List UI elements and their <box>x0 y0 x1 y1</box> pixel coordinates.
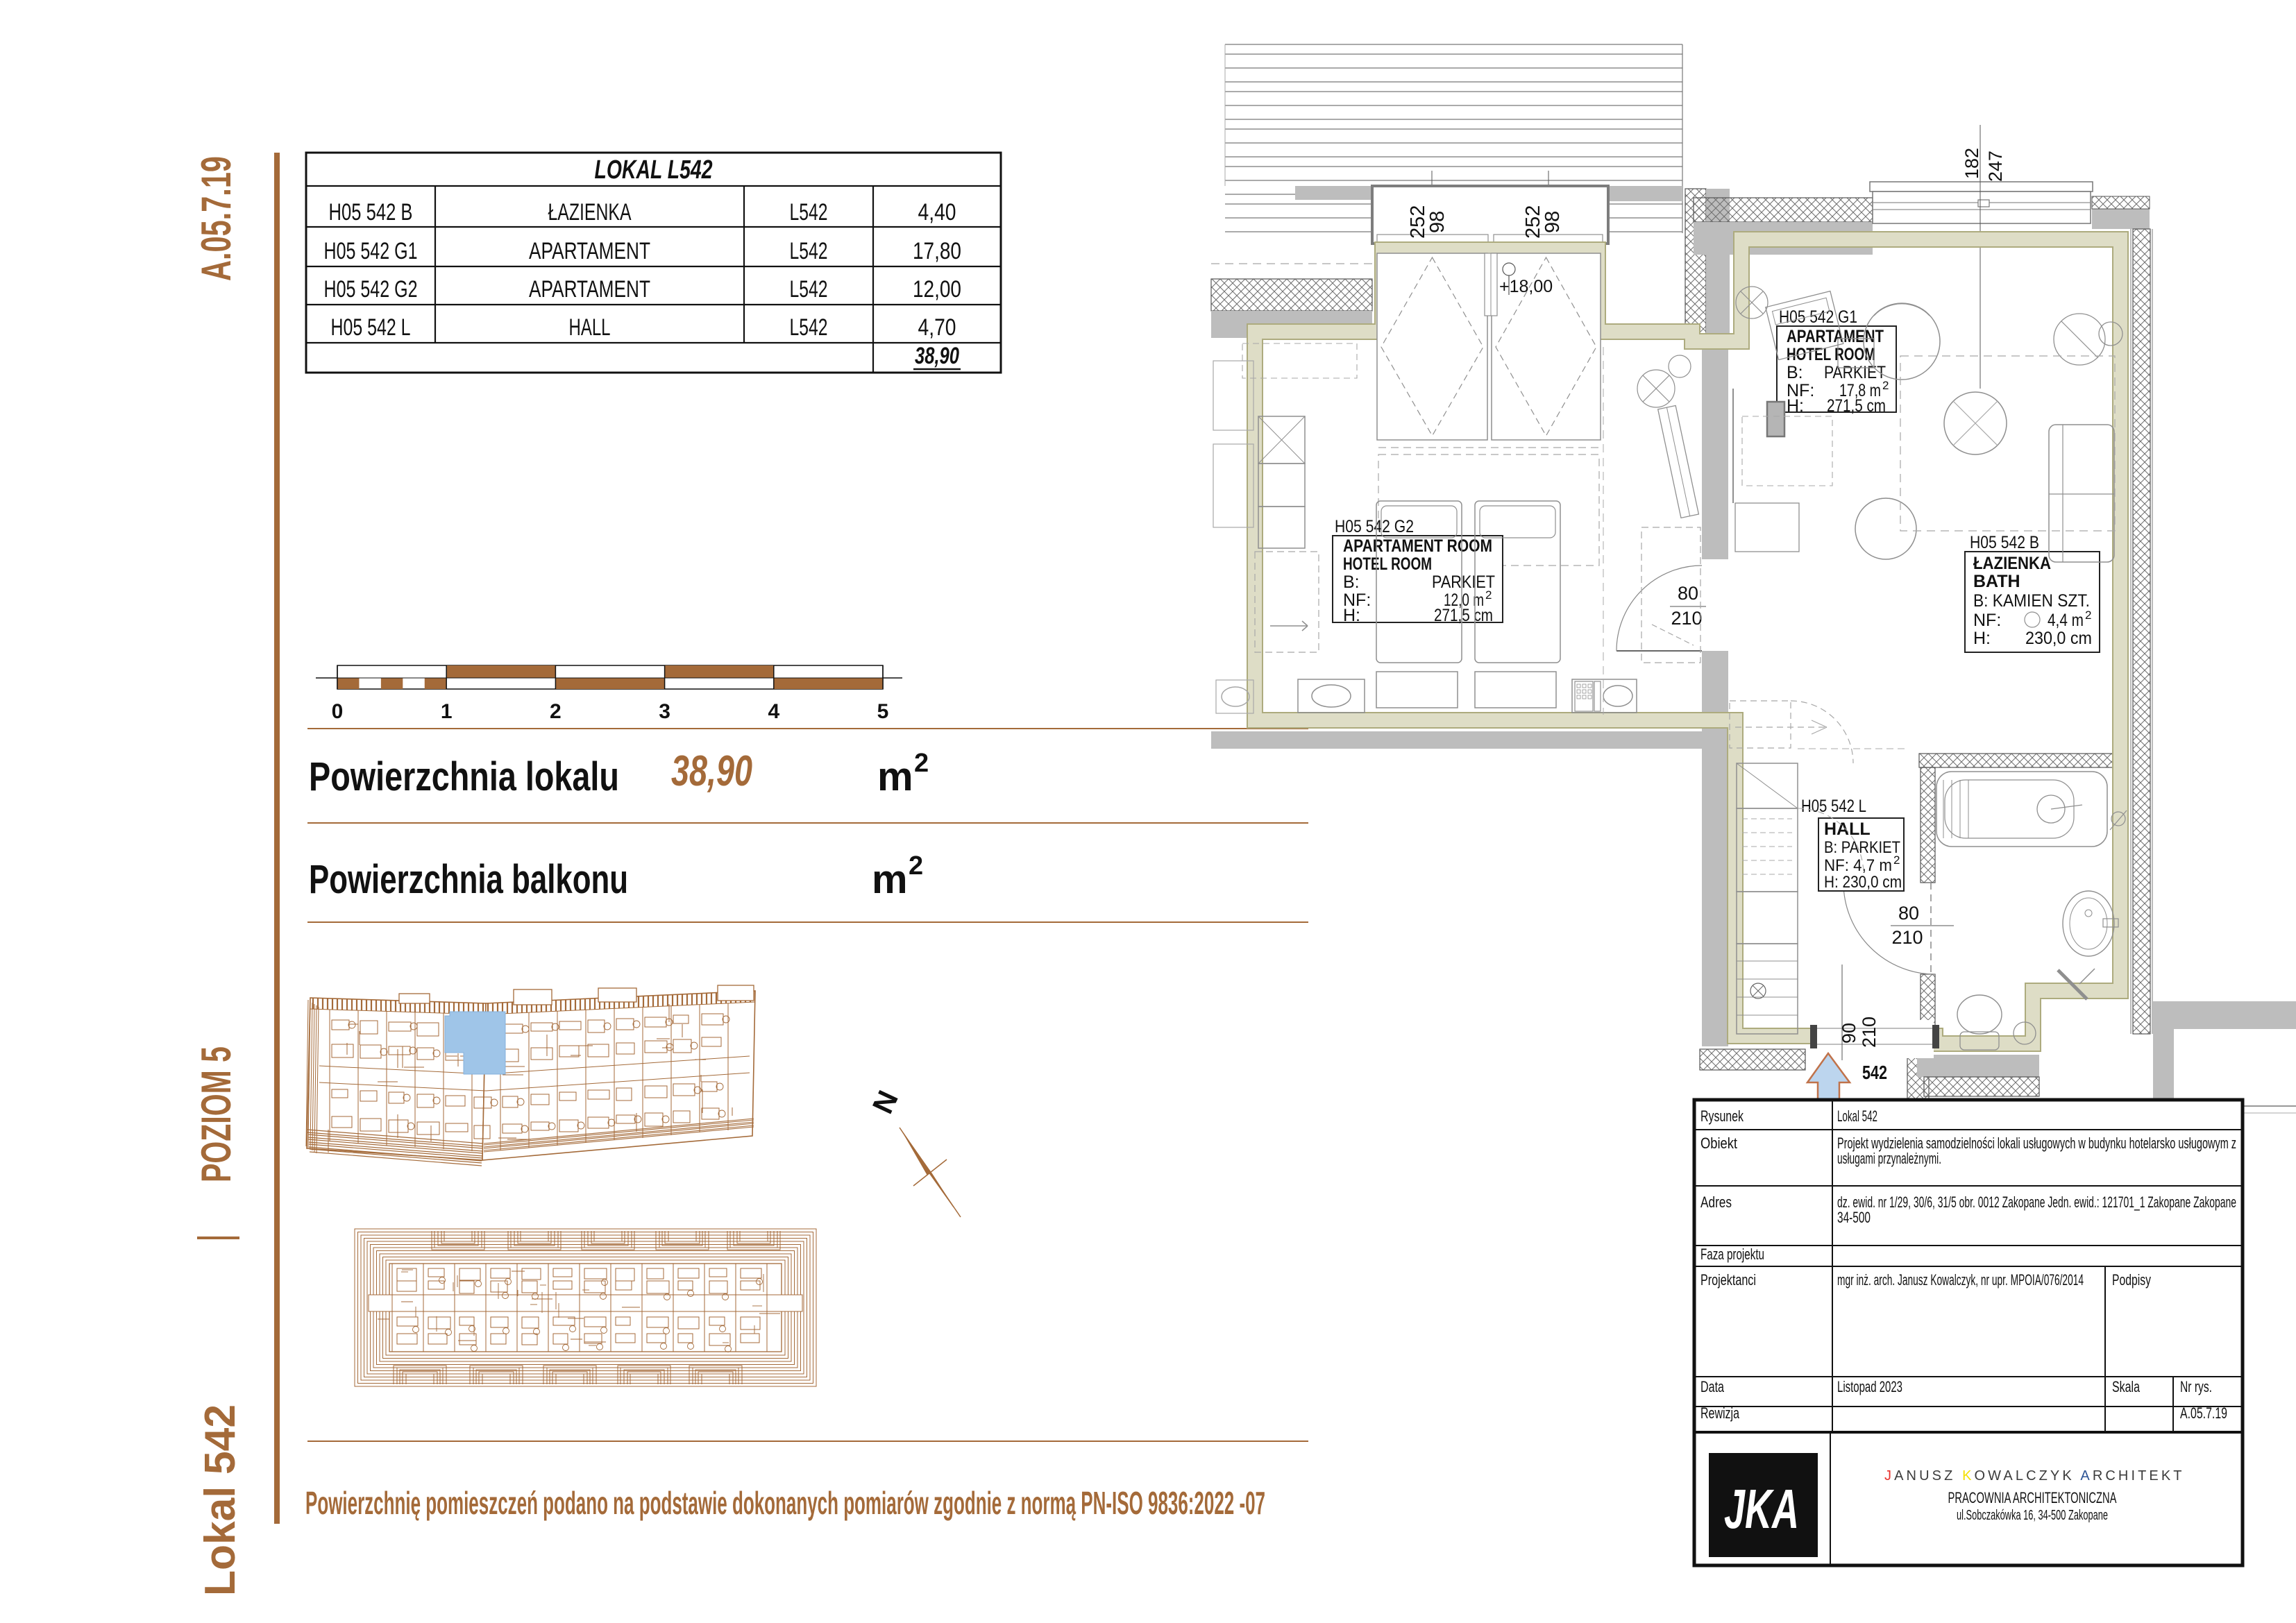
svg-text:98: 98 <box>1542 211 1564 233</box>
svg-text:JANUSZ KOWALCZYK ARCHITEKT: JANUSZ KOWALCZYK ARCHITEKT <box>1884 1468 2185 1484</box>
svg-text:L542: L542 <box>790 238 828 264</box>
svg-text:Projektanci: Projektanci <box>1700 1271 1756 1289</box>
svg-text:Lokal 542: Lokal 542 <box>196 1404 244 1596</box>
svg-text:B:: B: <box>1343 572 1360 592</box>
svg-text:1: 1 <box>441 700 453 723</box>
svg-text:A.05.7.19: A.05.7.19 <box>2180 1404 2227 1422</box>
svg-text:usługami przynależnymi.: usługami przynależnymi. <box>1837 1150 1941 1167</box>
svg-text:H05 542 B: H05 542 B <box>329 199 413 226</box>
svg-text:Powierzchnię pomieszczeń podan: Powierzchnię pomieszczeń podano na podst… <box>305 1485 1265 1521</box>
svg-text:H: 230,0 cm: H: 230,0 cm <box>1824 873 1902 892</box>
svg-text:dz. ewid. nr 1/29, 30/6, 31/5: dz. ewid. nr 1/29, 30/6, 31/5 obr. 0012 … <box>1837 1193 2236 1211</box>
svg-text:210: 210 <box>1891 927 1923 948</box>
svg-text:PRACOWNIA ARCHITEKTONICZNA: PRACOWNIA ARCHITEKTONICZNA <box>1948 1489 2117 1506</box>
svg-text:ŁAZIENKA: ŁAZIENKA <box>1973 554 2051 573</box>
svg-text:Faza projektu: Faza projektu <box>1700 1246 1764 1263</box>
svg-text:POZIOM 5: POZIOM 5 <box>193 1046 239 1182</box>
svg-text:2: 2 <box>2085 609 2091 622</box>
svg-text:80: 80 <box>1898 903 1919 924</box>
svg-text:A.05.7.19: A.05.7.19 <box>193 156 239 281</box>
svg-text:H05 542 B: H05 542 B <box>1970 533 2039 552</box>
svg-text:PARKIET: PARKIET <box>1824 363 1886 382</box>
svg-text:HALL: HALL <box>569 314 611 341</box>
svg-text:Nr rys.: Nr rys. <box>2180 1378 2212 1395</box>
svg-text:H05 542 G1: H05 542 G1 <box>324 238 418 264</box>
svg-text:HALL: HALL <box>1824 819 1871 839</box>
svg-text:271,5 cm: 271,5 cm <box>1434 606 1493 625</box>
svg-text:BATH: BATH <box>1973 572 2020 591</box>
svg-text:4: 4 <box>768 700 779 723</box>
svg-text:34-500: 34-500 <box>1837 1209 1871 1226</box>
svg-text:Obiekt: Obiekt <box>1700 1135 1737 1152</box>
svg-text:m: m <box>877 754 913 799</box>
svg-text:Data: Data <box>1700 1378 1725 1395</box>
svg-text:LOKAL L542: LOKAL L542 <box>595 155 713 185</box>
svg-text:271,5 cm: 271,5 cm <box>1827 396 1886 416</box>
svg-text:L542: L542 <box>790 314 828 341</box>
svg-text:ŁAZIENKA: ŁAZIENKA <box>548 199 632 226</box>
svg-text:H05 542 L: H05 542 L <box>1801 797 1866 816</box>
svg-text:H:: H: <box>1787 396 1804 416</box>
svg-text:APARTAMENT: APARTAMENT <box>529 276 650 303</box>
svg-text:Powierzchnia balkonu: Powierzchnia balkonu <box>309 857 628 902</box>
svg-text:2: 2 <box>1485 588 1492 602</box>
svg-text:H:: H: <box>1343 606 1360 625</box>
svg-text:4,40: 4,40 <box>918 199 956 226</box>
svg-text:98: 98 <box>1426 211 1449 233</box>
svg-text:38,90: 38,90 <box>671 747 752 795</box>
svg-text:ul.Sobczakówka 16, 34-500 Zako: ul.Sobczakówka 16, 34-500 Zakopane <box>1957 1508 2108 1523</box>
svg-text:H05 542 G2: H05 542 G2 <box>1335 517 1414 536</box>
svg-text:17,80: 17,80 <box>913 238 961 264</box>
svg-text:mgr inż. arch. Janusz Kowalczy: mgr inż. arch. Janusz Kowalczyk, nr upr.… <box>1837 1271 2084 1289</box>
svg-text:B: KAMIEN SZT.: B: KAMIEN SZT. <box>1973 591 2090 611</box>
svg-text:80: 80 <box>1678 583 1698 604</box>
svg-text:NF:: NF: <box>1973 611 2001 630</box>
svg-text:247: 247 <box>1985 151 2006 182</box>
svg-text:2: 2 <box>1882 379 1889 392</box>
svg-text:APARTAMENT: APARTAMENT <box>529 238 650 264</box>
svg-text:Skala: Skala <box>2112 1378 2141 1395</box>
svg-text:2: 2 <box>914 749 929 778</box>
svg-text:HOTEL ROOM: HOTEL ROOM <box>1343 554 1432 574</box>
svg-text:H05 542 G1: H05 542 G1 <box>1779 307 1857 327</box>
svg-text:5: 5 <box>877 700 889 723</box>
svg-text:Podpisy: Podpisy <box>2112 1271 2151 1289</box>
svg-text:H05 542 L: H05 542 L <box>331 314 411 341</box>
svg-text:H:: H: <box>1973 629 1991 648</box>
svg-text:4,4 m: 4,4 m <box>2048 611 2084 630</box>
svg-text:210: 210 <box>1671 608 1702 629</box>
svg-text:38,90: 38,90 <box>915 343 959 369</box>
svg-text:0: 0 <box>332 700 344 723</box>
svg-text:m: m <box>872 857 908 902</box>
svg-text:H05 542 G2: H05 542 G2 <box>324 276 418 303</box>
svg-text:2: 2 <box>1893 853 1900 867</box>
svg-text:542: 542 <box>1862 1062 1887 1083</box>
svg-text:12,00: 12,00 <box>913 276 961 303</box>
svg-text:L542: L542 <box>790 199 828 226</box>
svg-text:APARTAMENT ROOM: APARTAMENT ROOM <box>1343 536 1492 556</box>
svg-text:182: 182 <box>1961 148 1982 179</box>
svg-text:JKA: JKA <box>1724 1478 1799 1540</box>
svg-text:2: 2 <box>909 851 923 881</box>
svg-text:230,0 cm: 230,0 cm <box>2025 629 2092 648</box>
svg-text:L542: L542 <box>790 276 828 303</box>
svg-text:2: 2 <box>550 700 562 723</box>
svg-text:APARTAMENT: APARTAMENT <box>1787 327 1884 346</box>
svg-text:4,70: 4,70 <box>918 314 956 341</box>
svg-text:Listopad 2023: Listopad 2023 <box>1837 1378 1902 1395</box>
svg-text:Powierzchnia lokalu: Powierzchnia lokalu <box>309 754 619 799</box>
svg-text:B:: B: <box>1787 363 1803 382</box>
svg-text:Rysunek: Rysunek <box>1700 1107 1744 1125</box>
svg-text:Adres: Adres <box>1700 1193 1732 1211</box>
svg-text:B: PARKIET: B: PARKIET <box>1824 838 1900 857</box>
svg-text:90: 90 <box>1839 1023 1859 1044</box>
svg-text:3: 3 <box>659 700 670 723</box>
svg-text:Lokal 542: Lokal 542 <box>1837 1107 1877 1125</box>
svg-text:+18,00: +18,00 <box>1499 277 1553 296</box>
svg-text:Rewizja: Rewizja <box>1700 1404 1740 1422</box>
svg-text:210: 210 <box>1859 1017 1880 1048</box>
svg-text:NF: 4,7 m: NF: 4,7 m <box>1824 856 1892 875</box>
